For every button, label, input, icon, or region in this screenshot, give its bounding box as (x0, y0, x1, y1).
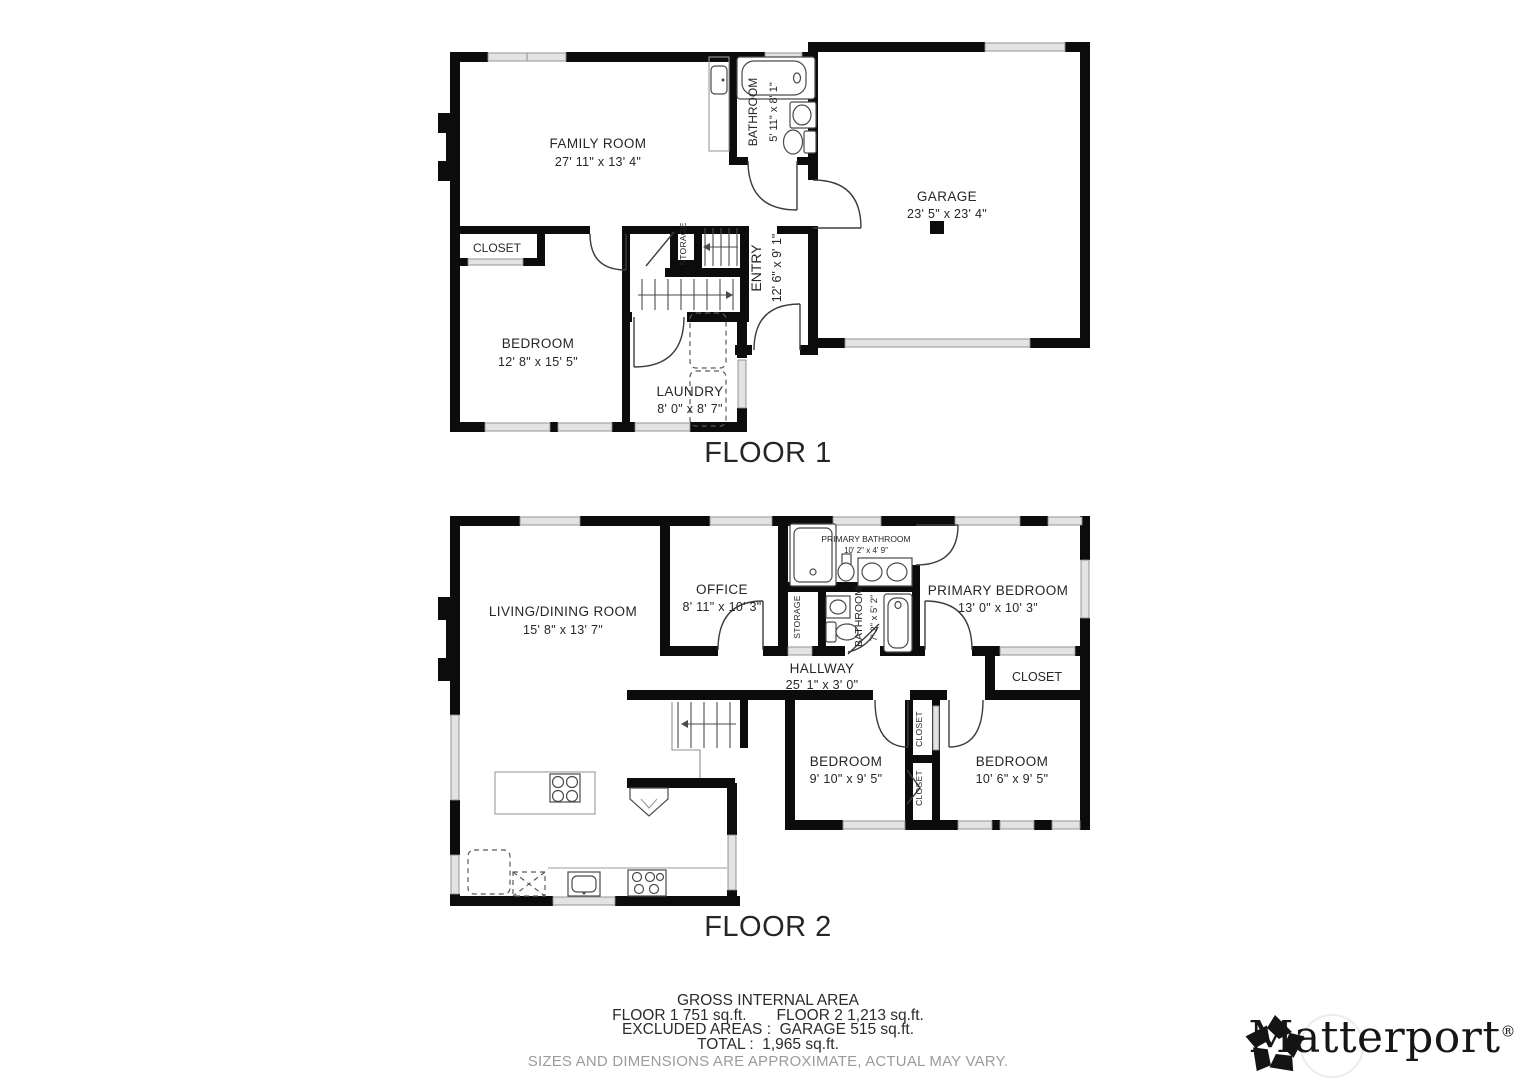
gross-internal-area-title: GROSS INTERNAL AREA (0, 994, 1536, 1009)
primary-bathroom-label: PRIMARY BATHROOM (821, 534, 910, 544)
floor2-title: FLOOR 2 (704, 911, 832, 943)
garage-label: GARAGE (917, 189, 977, 204)
matterport-logo: Matterport® (1240, 1012, 1516, 1063)
floor2-fixtures (468, 524, 912, 896)
entry-label: ENTRY (748, 244, 764, 292)
closet1-label: CLOSET (473, 241, 522, 255)
living-dining-label: LIVING/DINING ROOM (489, 604, 637, 619)
registered-mark: ® (1501, 1022, 1517, 1040)
bathroom1-label: BATHROOM (746, 78, 760, 146)
office-dims: 8' 11" x 10' 3" (682, 600, 761, 614)
bedroom1-label: BEDROOM (502, 336, 575, 351)
storage1-label: STORAGE (678, 222, 688, 266)
bedroom-a-dims: 9' 10" x 9' 5" (810, 772, 883, 786)
laundry-dims: 8' 0" x 8' 7" (657, 402, 723, 416)
matterport-pinwheel-icon (1240, 1012, 1310, 1080)
floor1-title: FLOOR 1 (704, 437, 832, 469)
bedroom-a-label: BEDROOM (810, 754, 883, 769)
fridge-icon (468, 850, 510, 894)
laundry-label: LAUNDRY (656, 384, 723, 399)
closet-a-label: CLOSET (914, 711, 924, 747)
bathroom1-dims: 5' 11" x 8' 1" (768, 82, 780, 142)
counter-sink-icon (709, 57, 729, 151)
storage2-label: STORAGE (792, 595, 802, 639)
family-room-dims: 27' 11" x 13' 4" (555, 155, 641, 169)
hallway-dims: 25' 1" x 3' 0" (786, 678, 859, 692)
hall-bath-sink-icon (826, 596, 850, 618)
primary-bedroom-dims: 13' 0" x 10' 3" (958, 601, 1038, 615)
pedestal-sink-icon (838, 554, 854, 581)
dishwasher-icon (513, 872, 545, 896)
office-label: OFFICE (696, 582, 748, 597)
garage-dims: 23' 5" x 23' 4" (907, 207, 987, 221)
primary-bedroom-label: PRIMARY BEDROOM (928, 583, 1069, 598)
hallway-label: HALLWAY (790, 661, 855, 676)
floor2-windows (451, 517, 1089, 905)
closet-b-label: CLOSET (914, 770, 924, 806)
floor1-walls (436, 42, 1090, 432)
garage-column (930, 221, 944, 234)
floor1-plan: FAMILY ROOM 27' 11" x 13' 4" BATHROOM 5'… (436, 42, 1090, 469)
floor2-plan: LIVING/DINING ROOM 15' 8" x 13' 7" OFFIC… (436, 516, 1090, 943)
floor1-doors (590, 161, 861, 367)
bathroom-sink-icon (790, 102, 816, 128)
double-vanity-icon (858, 558, 912, 586)
floorplan-page: FAMILY ROOM 27' 11" x 13' 4" BATHROOM 5'… (0, 0, 1536, 1086)
bathroom2-label: BATHROOM (853, 587, 865, 647)
bathroom2-dims: 7' 2" x 5' 2" (869, 595, 880, 642)
living-dining-dims: 15' 8" x 13' 7" (523, 623, 603, 637)
range-icon (628, 870, 666, 896)
floor2-stairs-icon (672, 702, 736, 778)
primary-bathroom-dims: 10' 2" x 4' 9" (844, 546, 888, 555)
closet-primary-label: CLOSET (1012, 670, 1062, 684)
floor1-windows (468, 43, 1065, 431)
hall-bathtub-icon (884, 594, 912, 652)
garage-door (845, 339, 1030, 347)
bedroom1-dims: 12' 8" x 15' 5" (498, 355, 578, 369)
entry-dims: 12' 6" x 9' 1" (770, 234, 784, 303)
bedroom-b-dims: 10' 6" x 9' 5" (976, 772, 1049, 786)
floorplan-drawing: FAMILY ROOM 27' 11" x 13' 4" BATHROOM 5'… (0, 0, 1536, 1086)
toilet-icon (784, 130, 817, 154)
kitchen-island-icon (495, 772, 595, 814)
bedroom-b-label: BEDROOM (976, 754, 1049, 769)
corner-sink-icon (630, 788, 668, 816)
floor2-walls (436, 516, 1090, 906)
family-room-label: FAMILY ROOM (550, 136, 647, 151)
